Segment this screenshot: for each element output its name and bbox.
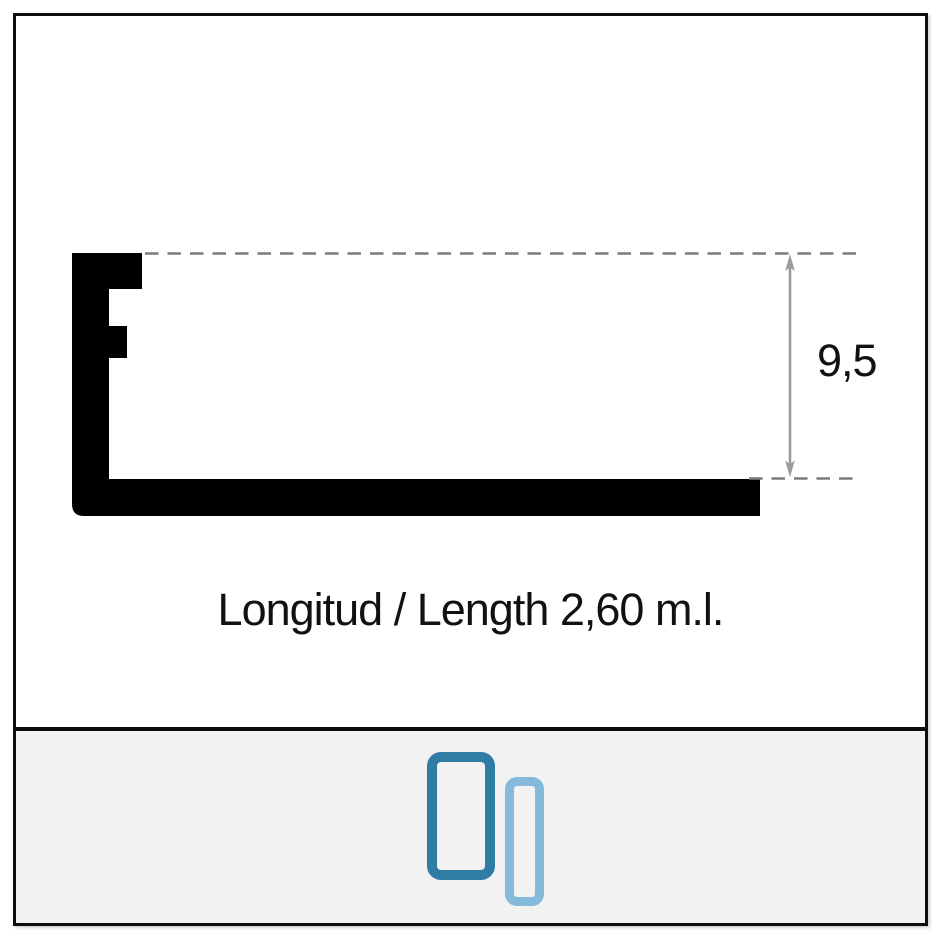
profile-thumbnail-large-icon: [427, 752, 495, 880]
profile-thumbnail-small-icon: [505, 777, 544, 906]
length-caption: Longitud / Length 2,60 m.l.: [16, 587, 925, 632]
product-diagram-canvas: 9,5 Longitud / Length 2,60 m.l.: [0, 0, 940, 940]
dimension-label: 9,5: [817, 338, 877, 383]
